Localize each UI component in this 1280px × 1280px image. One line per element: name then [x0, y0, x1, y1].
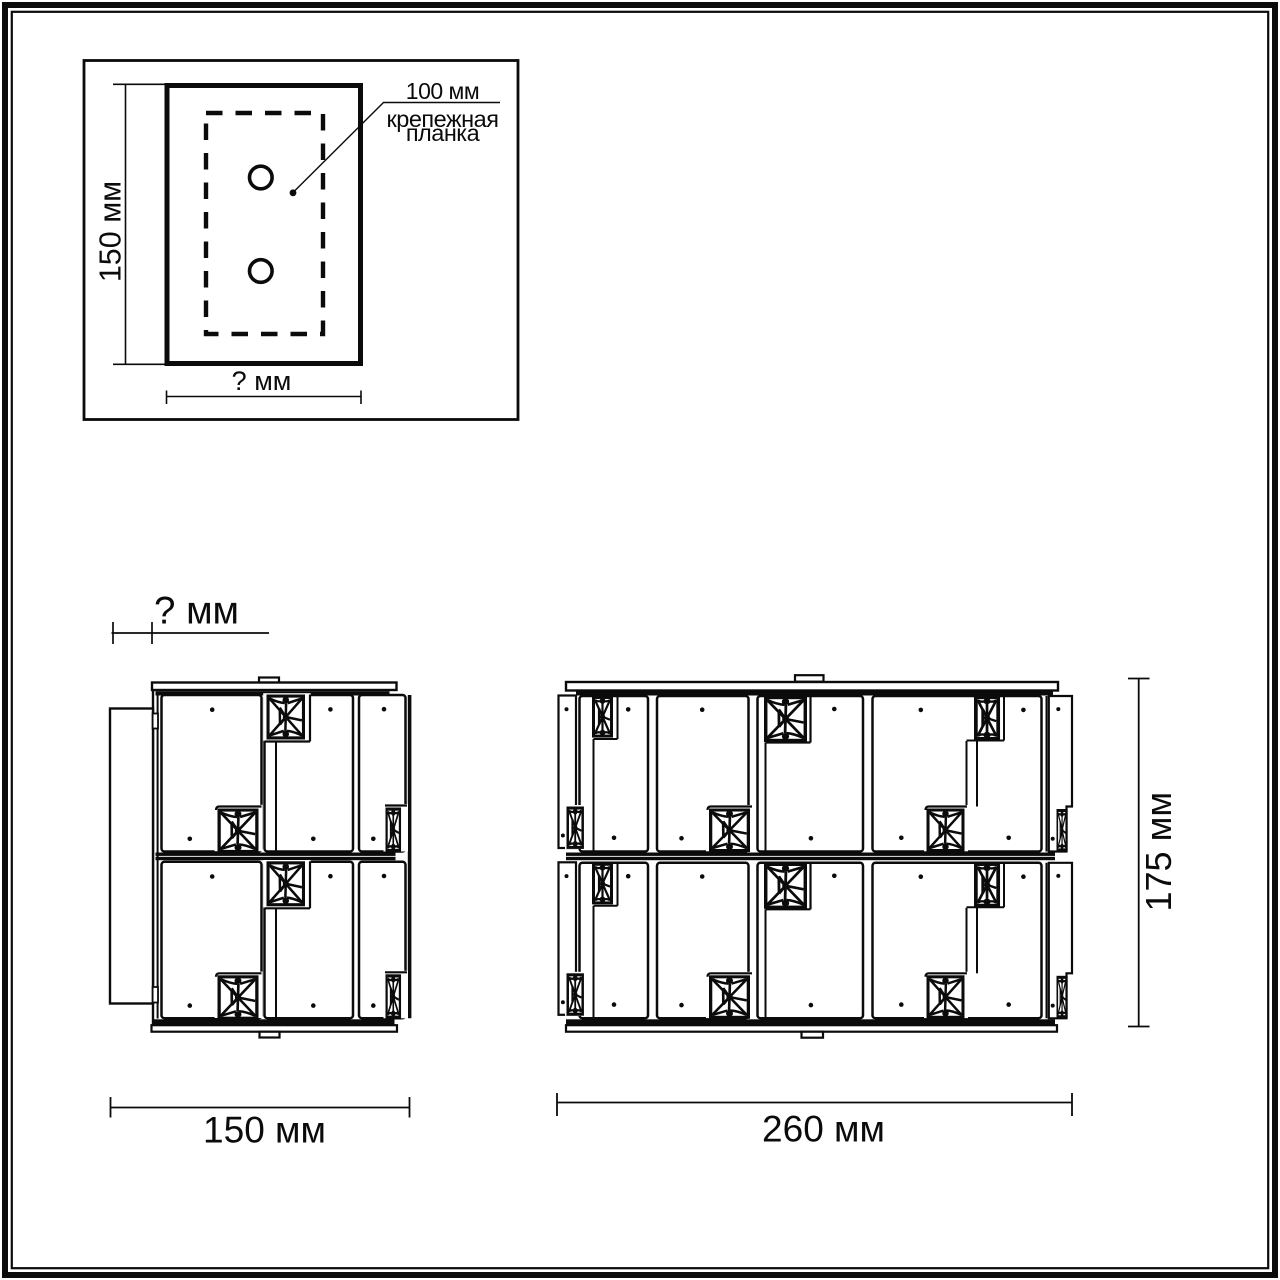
svg-text:планка: планка — [406, 120, 481, 146]
svg-text:100 мм: 100 мм — [406, 78, 479, 104]
svg-text:150 мм: 150 мм — [203, 1110, 326, 1151]
svg-text:150 мм: 150 мм — [94, 181, 128, 282]
svg-text:175 мм: 175 мм — [1138, 792, 1179, 912]
svg-text:? мм: ? мм — [154, 590, 239, 633]
svg-text:260 мм: 260 мм — [762, 1109, 885, 1150]
svg-text:? мм: ? мм — [232, 366, 292, 396]
